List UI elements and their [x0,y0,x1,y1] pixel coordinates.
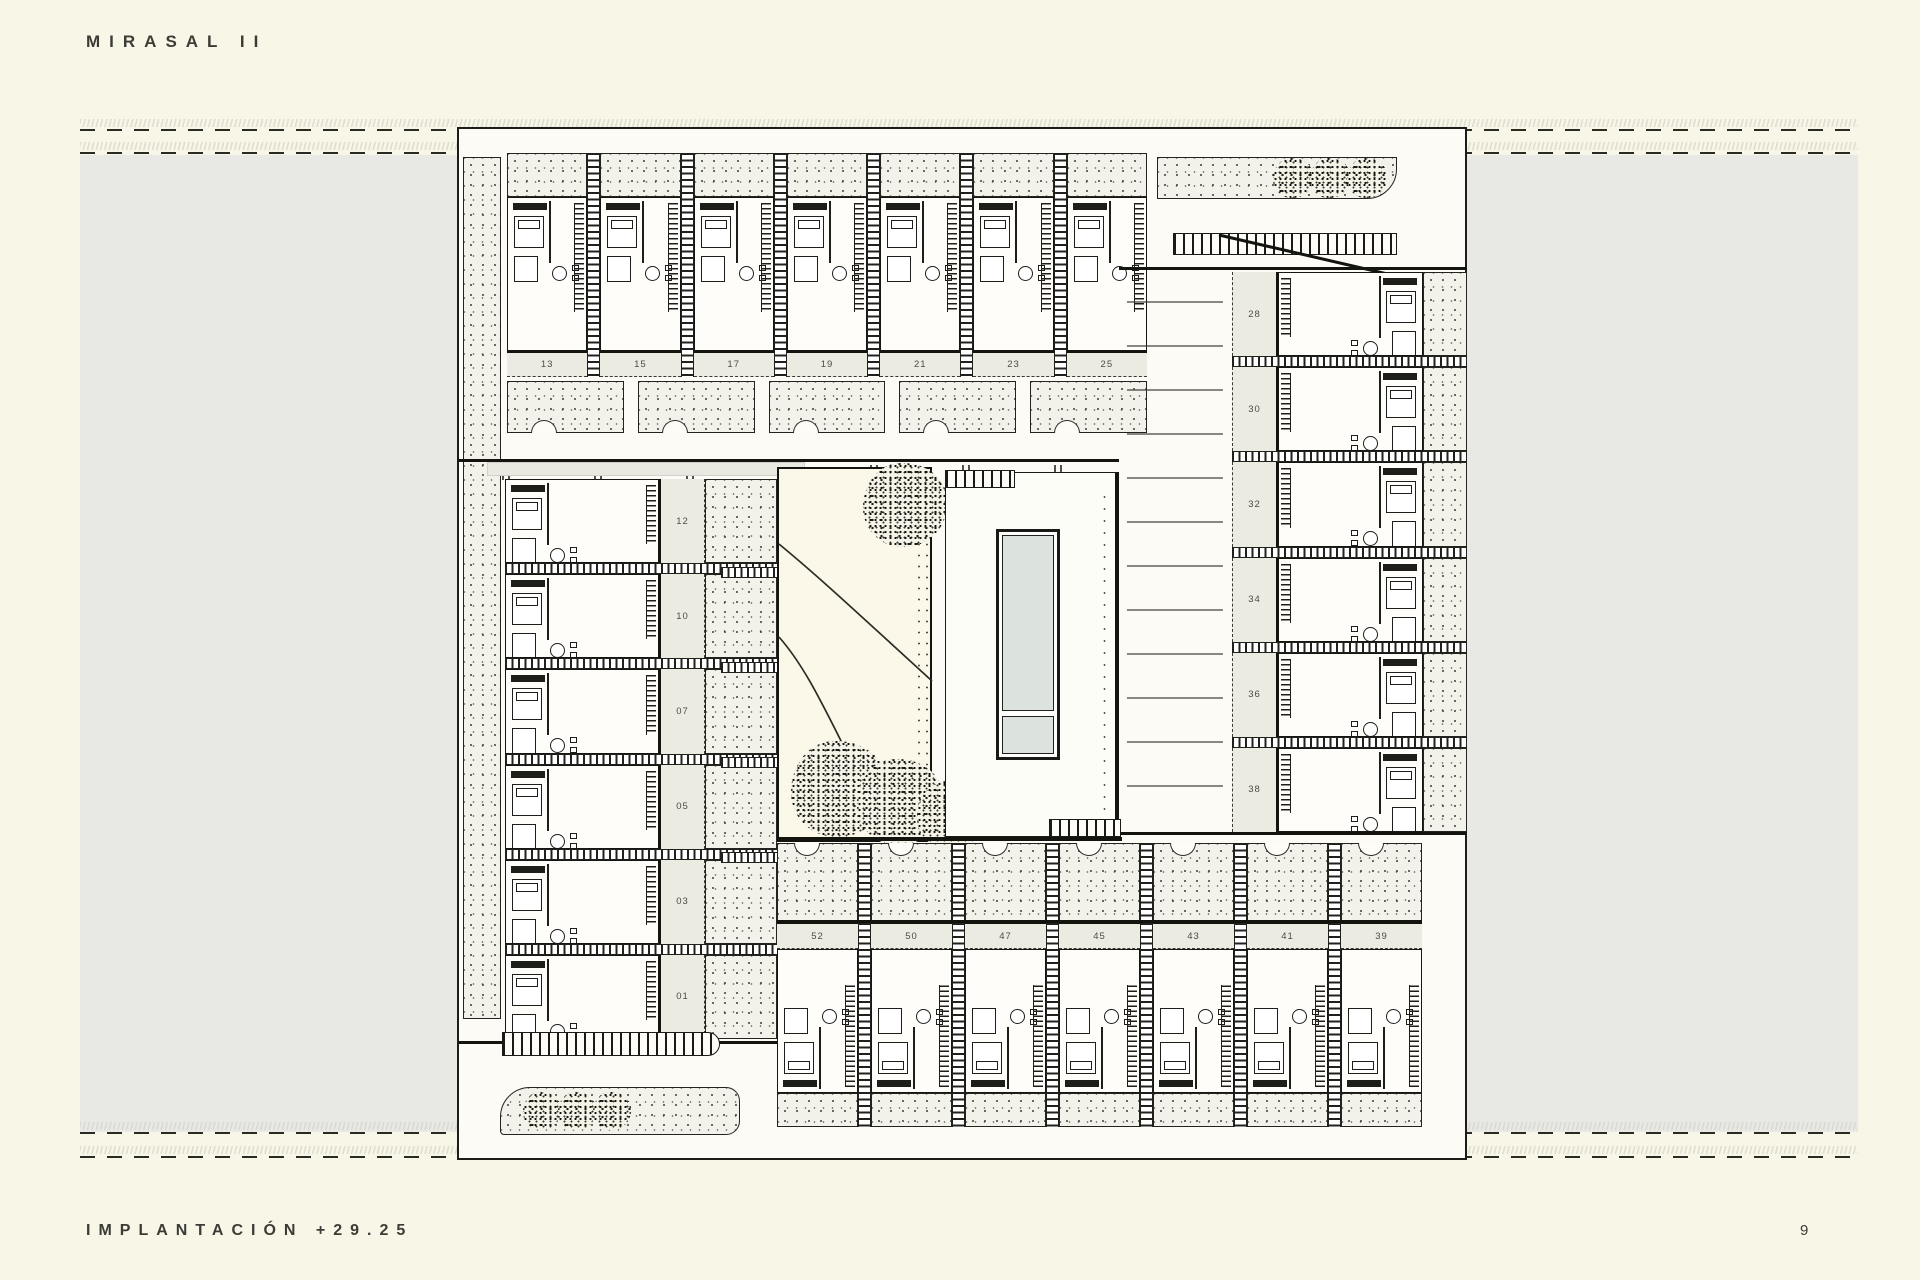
unit-number: 07 [676,706,689,717]
stairs-divider [505,944,777,955]
bed-small [512,538,536,563]
pergola [502,1032,720,1056]
building-edge [777,837,1122,841]
furniture-layer [881,198,959,350]
unit-interior [777,949,858,1093]
walkway-bridge [721,662,777,673]
unit-number: 39 [1375,931,1388,942]
furniture-layer [872,950,951,1092]
furniture-layer [974,198,1052,350]
chair [1351,626,1358,632]
bed [1348,1042,1378,1074]
stair-strip [646,866,656,925]
stairs-divider [960,153,973,377]
partition-wall [1379,466,1381,528]
stair-strip [939,985,949,1087]
stair-strip [1315,985,1325,1087]
unit-interior [1247,949,1328,1093]
unit-number: 03 [676,896,689,907]
bed-small [972,1008,996,1034]
furniture-layer [1060,950,1139,1092]
partition-wall [1379,752,1381,814]
stair-strip [646,961,656,1020]
stair-strip [1127,985,1137,1087]
door-arc [531,420,557,433]
unit-cell: 43 [1153,923,1234,1127]
stairs-divider [858,923,871,1127]
unit-cell: 07 [505,669,777,753]
garage-plot [1153,843,1234,921]
stairs-divider [1328,843,1341,921]
unit-cell: 50 [871,923,952,1127]
stair-strip [646,580,656,639]
kitchen-counter [511,485,545,492]
unit-number: 13 [541,359,554,370]
bed-small [1074,256,1098,282]
garden-patch [705,955,777,1039]
unit-number-band: 52 [777,923,858,949]
stair-strip [1041,203,1051,312]
partition-wall [829,201,831,263]
site-plan: 13151719212325 283032343638 121007050301 [457,127,1467,1160]
unit-number-band: 32 [1232,462,1278,546]
furniture-layer [506,670,658,752]
garden-patch [1423,653,1467,737]
furniture-layer [1279,273,1422,355]
kitchen-counter [1347,1080,1381,1087]
unit-number-band: 39 [1341,923,1422,949]
bed [784,1042,814,1074]
unit-number: 17 [727,359,740,370]
garden-patch [1423,748,1467,832]
bed-small [887,256,911,282]
unit-number: 05 [676,801,689,812]
garden-patch [1423,462,1467,546]
furniture-layer [778,950,857,1092]
garden-patch [705,860,777,944]
furniture-layer [1154,950,1233,1092]
bed-small [784,1008,808,1034]
bed [1160,1042,1190,1074]
partition-wall [547,959,549,1021]
unit-cell: 01 [505,955,777,1039]
chair [570,547,577,553]
unit-column-right: 283032343638 [1232,272,1467,832]
parking-plots [507,381,1147,433]
kitchen-counter [1383,564,1417,571]
stair-strip [1409,985,1419,1087]
unit-cell: 45 [1059,923,1140,1127]
round-table [552,266,567,281]
unit-number-band: 10 [659,574,705,658]
unit-number-band: 38 [1232,748,1278,832]
chair [570,843,577,849]
round-table [550,834,565,849]
bed [887,216,917,248]
walkway-bridge [721,567,777,578]
unit-cell: 19 [787,153,867,377]
partition-wall [549,201,551,263]
bed [1386,481,1416,513]
unit-number-band: 21 [880,351,960,377]
unit-number: 52 [811,931,824,942]
round-table [1363,531,1378,546]
unit-number-band: 23 [973,351,1053,377]
chair [570,642,577,648]
stairs-divider [1046,923,1059,1127]
round-table [1363,436,1378,451]
swimming-pool [996,529,1060,760]
round-table [822,1009,837,1024]
unit-number: 21 [914,359,927,370]
bed [1074,216,1104,248]
tree-canopy [1347,158,1387,198]
round-table [1198,1009,1213,1024]
kitchen-counter [1159,1080,1193,1087]
unit-cell: 28 [1232,272,1467,356]
unit-cell: 30 [1232,367,1467,451]
unit-number: 12 [676,516,689,527]
garden-patch [705,669,777,753]
garden-patch [1341,1093,1422,1127]
unit-number: 30 [1248,404,1261,415]
unit-interior [1278,272,1423,356]
unit-number: 43 [1187,931,1200,942]
unit-interior [1341,949,1422,1093]
unit-number: 36 [1248,689,1261,700]
door-arc [1076,843,1102,856]
unit-cell: 47 [965,923,1046,1127]
unit-interior [505,479,659,563]
partition-wall [1379,276,1381,338]
furniture-layer [601,198,679,350]
unit-number: 10 [676,611,689,622]
bed [512,974,542,1006]
stairs-divider [1232,642,1467,653]
kitchen-counter [1065,1080,1099,1087]
door-arc [794,843,820,856]
bed-small [1066,1008,1090,1034]
chair [570,747,577,753]
bed [1386,291,1416,323]
stairs-divider [1232,451,1467,462]
unit-number: 38 [1248,784,1261,795]
unit-number: 28 [1248,309,1261,320]
bed-small [1254,1008,1278,1034]
unit-interior [973,197,1053,351]
bed-small [878,1008,902,1034]
stair-strip [646,485,656,544]
unit-interior [871,949,952,1093]
garden-plot [769,381,886,433]
kitchen-counter [971,1080,1005,1087]
chair [1351,540,1358,546]
chair [1351,445,1358,451]
unit-number-band: 50 [871,923,952,949]
furniture-layer [695,198,773,350]
bed [1386,386,1416,418]
garden-patch [1067,153,1147,197]
garden-patch [1423,558,1467,642]
kitchen-counter [979,203,1013,210]
door-arc [1264,843,1290,856]
unit-cell: 13 [507,153,587,377]
bed-small [1392,807,1416,832]
furniture-layer [966,950,1045,1092]
unit-number-band: 41 [1247,923,1328,949]
bed [1386,767,1416,799]
bed-small [1348,1008,1372,1034]
partition-wall [1101,1027,1103,1089]
garden-patch [1423,367,1467,451]
chair [570,928,577,934]
round-table [916,1009,931,1024]
bed [980,216,1010,248]
kitchen-counter [783,1080,817,1087]
bed [512,498,542,530]
bed [514,216,544,248]
furniture-layer [1279,368,1422,450]
unit-cell: 39 [1341,923,1422,1127]
stair-strip [1281,278,1291,337]
door-arc [662,420,688,433]
partition-wall [1379,562,1381,624]
unit-interior [1153,949,1234,1093]
partition-wall [1383,1027,1385,1089]
stair-strip [1281,754,1291,813]
unit-row-bottom: 52504745434139 [777,923,1422,1127]
unit-number-band: 19 [787,351,867,377]
unit-cell: 36 [1232,653,1467,737]
partition-wall [642,201,644,263]
partition-wall [736,201,738,263]
kitchen-counter [511,580,545,587]
garden-patch [1247,1093,1328,1127]
door-arc [793,420,819,433]
unit-number-band: 36 [1232,653,1278,737]
unit-row-top: 13151719212325 [507,153,1147,377]
stair-strip [761,203,771,312]
garden-patch [1423,272,1467,356]
chair [1351,721,1358,727]
round-table [1292,1009,1307,1024]
pool-water [1002,716,1054,754]
chair [570,833,577,839]
unit-interior [505,669,659,753]
bed-small [512,728,536,753]
unit-number: 23 [1007,359,1020,370]
partition-wall [1289,1027,1291,1089]
unit-interior [505,860,659,944]
round-table [1010,1009,1025,1024]
stairs-divider [1328,923,1341,1127]
stair-strip [1221,985,1231,1087]
tree-canopy [1310,158,1350,198]
stairs-divider [867,153,880,377]
round-table [1104,1009,1119,1024]
chair [570,938,577,944]
stairs-divider [1232,737,1467,748]
unit-interior [880,197,960,351]
bed-small [512,824,536,849]
unit-number-band: 43 [1153,923,1234,949]
unit-number-band: 30 [1232,367,1278,451]
round-table [739,266,754,281]
furniture-layer [1279,463,1422,545]
garden-patch [787,153,867,197]
bed-small [1392,331,1416,356]
partition-wall [922,201,924,263]
stair-strip [845,985,855,1087]
unit-cell: 41 [1247,923,1328,1127]
unit-cell: 15 [600,153,680,377]
unit-number-band: 12 [659,479,705,563]
kitchen-counter [511,961,545,968]
unit-interior [1278,462,1423,546]
round-table [645,266,660,281]
door-arc [923,420,949,433]
stair-strip [1281,468,1291,527]
unit-number-band: 05 [659,765,705,849]
unit-number: 47 [999,931,1012,942]
door-arc [982,843,1008,856]
furniture-layer [506,575,658,657]
round-table [1363,817,1378,832]
kitchen-counter [1383,754,1417,761]
partition-wall [1015,201,1017,263]
kitchen-counter [1073,203,1107,210]
bed [972,1042,1002,1074]
partition-wall [547,483,549,545]
bed-small [1392,521,1416,546]
partition-wall [1379,371,1381,433]
furniture-layer [1279,749,1422,831]
bed [794,216,824,248]
chair [570,557,577,563]
round-table [925,266,940,281]
kitchen-counter [511,866,545,873]
unit-cell: 52 [777,923,858,1127]
garage-plot [1341,843,1422,921]
kitchen-counter [1383,659,1417,666]
chair [1351,636,1358,642]
partition-wall [1195,1027,1197,1089]
pergola [1049,819,1121,837]
bed [1386,672,1416,704]
unit-interior [507,197,587,351]
stair-strip [1033,985,1043,1087]
unit-cell: 23 [973,153,1053,377]
bed [1254,1042,1284,1074]
furniture-layer [1279,654,1422,736]
bed [512,784,542,816]
unit-interior [787,197,867,351]
door-arc [1170,843,1196,856]
unit-number-band: 28 [1232,272,1278,356]
bed-small [1392,426,1416,451]
unit-number: 25 [1101,359,1114,370]
bed [607,216,637,248]
kitchen-counter [1383,468,1417,475]
partition-wall [913,1027,915,1089]
garden-patch [880,153,960,197]
garden-plot [638,381,755,433]
gravel-strip [1100,491,1112,818]
bed [512,879,542,911]
bed [701,216,731,248]
round-table [1363,627,1378,642]
unit-interior [1059,949,1140,1093]
left-context-panel [80,155,457,1132]
stair-strip [854,203,864,312]
unit-cell: 17 [694,153,774,377]
unit-number-band: 47 [965,923,1046,949]
tree-canopy [593,1092,631,1130]
chair [1351,731,1358,737]
garage-plot [871,843,952,921]
garden-patch [705,574,777,658]
bed-small [794,256,818,282]
door-arc [888,843,914,856]
bed-small [1392,617,1416,642]
bed-small [980,256,1004,282]
partition-wall [547,673,549,735]
unit-cell: 34 [1232,558,1467,642]
kitchen-counter [793,203,827,210]
furniture-layer [1342,950,1421,1092]
kitchen-counter [511,675,545,682]
furniture-layer [506,956,658,1038]
stairs-divider [774,153,787,377]
unit-number-band: 13 [507,351,587,377]
garden-plot [507,381,624,433]
garage-plot [777,843,858,921]
garden-plot [899,381,1016,433]
unit-cell: 12 [505,479,777,563]
page-number: 9 [1800,1222,1810,1239]
kitchen-counter [886,203,920,210]
building-edge [1119,832,1467,835]
door-arc [1054,420,1080,433]
pool-deck [945,472,1119,837]
garden-patch [1059,1093,1140,1127]
stairs-divider [1140,843,1153,921]
furniture-layer [506,766,658,848]
unit-number: 41 [1281,931,1294,942]
tree-canopy [1273,158,1313,198]
stairs-divider [1046,843,1059,921]
unit-number-band: 15 [600,351,680,377]
furniture-layer [788,198,866,350]
kitchen-counter [606,203,640,210]
garden-patch [694,153,774,197]
chair [570,1023,577,1029]
garden-patch [777,1093,858,1127]
unit-interior [505,955,659,1039]
furniture-layer [506,861,658,943]
round-table [832,266,847,281]
furniture-layer [1279,559,1422,641]
stairs-divider [858,843,871,921]
stair-strip [1281,564,1291,623]
stair-strip [668,203,678,312]
partition-wall [1109,201,1111,263]
unit-interior [694,197,774,351]
bed-small [1160,1008,1184,1034]
stair-strip [947,203,957,312]
garden-patch [600,153,680,197]
stairs-divider [952,923,965,1127]
